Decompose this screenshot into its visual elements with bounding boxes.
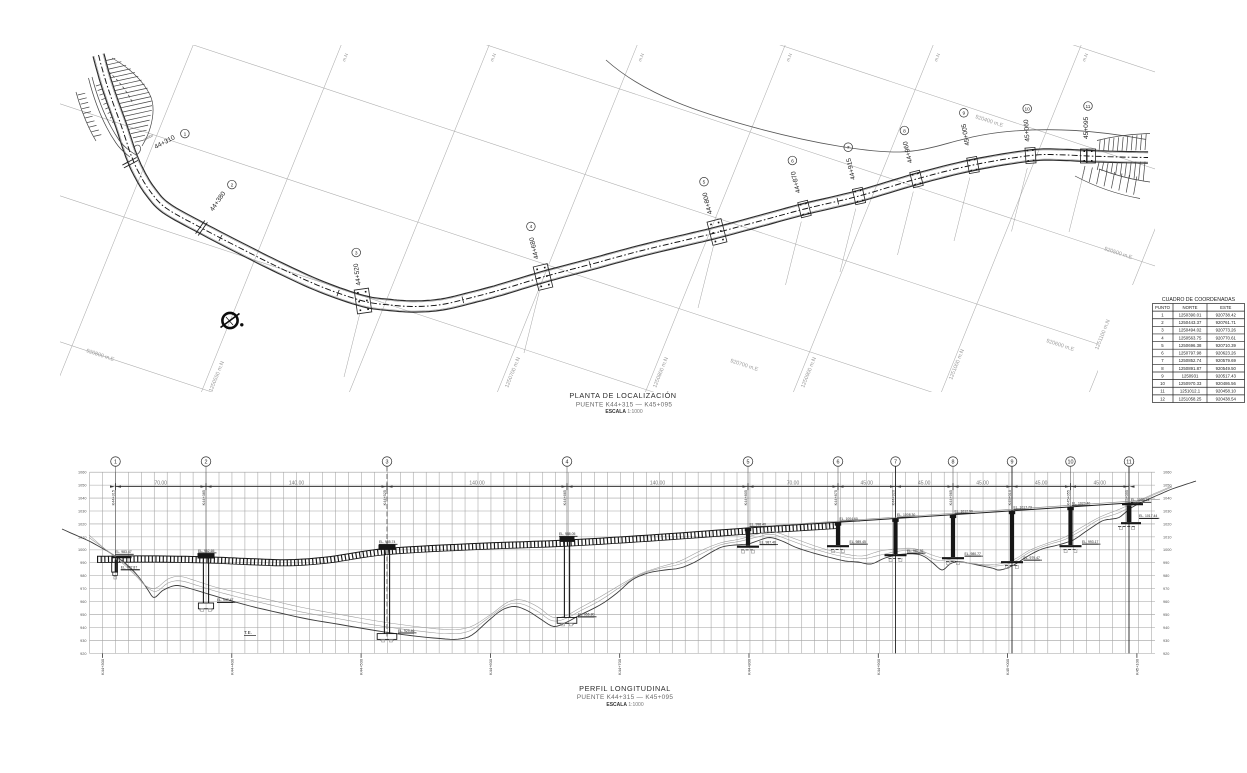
svg-text:140.00: 140.00 <box>469 480 485 486</box>
svg-text:1030: 1030 <box>1163 509 1171 513</box>
svg-text:PUENTE K44+315 — K45+095: PUENTE K44+315 — K45+095 <box>577 694 674 701</box>
svg-text:3: 3 <box>386 460 389 466</box>
svg-text:1060: 1060 <box>78 471 86 475</box>
svg-text:1250494.02: 1250494.02 <box>1179 328 1202 333</box>
svg-text:920458.10: 920458.10 <box>1216 389 1237 394</box>
svg-text:940: 940 <box>1163 626 1169 630</box>
svg-text:1250931: 1250931 <box>1182 373 1199 378</box>
svg-text:9: 9 <box>1011 460 1014 466</box>
svg-text:K44+315: K44+315 <box>111 490 115 505</box>
svg-text:EL. 987.32: EL. 987.32 <box>907 549 924 553</box>
svg-text:EL. 947.47: EL. 947.47 <box>217 598 234 602</box>
svg-text:11: 11 <box>1086 104 1091 110</box>
svg-text:920: 920 <box>80 652 86 656</box>
svg-text:EL. 987.46: EL. 987.46 <box>760 541 777 545</box>
svg-text:10: 10 <box>1068 460 1074 466</box>
svg-text:EL. 929.46: EL. 929.46 <box>398 629 415 633</box>
svg-text:2: 2 <box>231 182 234 188</box>
svg-text:K44+300: K44+300 <box>100 658 105 675</box>
svg-text:12: 12 <box>1160 396 1165 401</box>
svg-text:1: 1 <box>184 131 187 137</box>
svg-text:T.E.: T.E. <box>244 630 252 635</box>
svg-text:1250696.38: 1250696.38 <box>1179 343 1202 348</box>
svg-text:K44+800: K44+800 <box>747 658 752 675</box>
svg-text:2: 2 <box>205 460 208 466</box>
svg-text:45.00: 45.00 <box>918 480 931 486</box>
svg-text:1250563.75: 1250563.75 <box>1179 335 1202 340</box>
svg-text:NORTE: NORTE <box>1183 305 1198 310</box>
svg-text:EL. 989.45: EL. 989.45 <box>850 540 867 544</box>
svg-text:1250443.37: 1250443.37 <box>1179 320 1202 325</box>
svg-text:4: 4 <box>566 460 569 466</box>
svg-text:980: 980 <box>1163 574 1169 578</box>
svg-text:1060: 1060 <box>1163 471 1171 475</box>
svg-text:5: 5 <box>703 180 706 186</box>
svg-text:PUNTO: PUNTO <box>1155 305 1171 310</box>
svg-text:10: 10 <box>1160 381 1165 386</box>
svg-text:K45+055: K45+055 <box>1066 490 1070 505</box>
svg-text:5: 5 <box>747 460 750 466</box>
svg-text:3: 3 <box>355 250 358 256</box>
svg-text:990: 990 <box>1163 561 1169 565</box>
svg-text:K44+965: K44+965 <box>949 490 953 505</box>
svg-text:K44+805: K44+805 <box>744 490 748 505</box>
svg-text:1020: 1020 <box>78 522 86 526</box>
svg-text:140.00: 140.00 <box>289 480 305 486</box>
svg-text:K44+920: K44+920 <box>891 490 895 505</box>
svg-text:EL. 962.65: EL. 962.65 <box>198 549 215 553</box>
svg-text:1000: 1000 <box>78 548 86 552</box>
svg-text:ESTE: ESTE <box>1220 305 1231 310</box>
svg-text:EL. 1017.44: EL. 1017.44 <box>1139 514 1157 518</box>
svg-text:7: 7 <box>847 145 850 151</box>
svg-text:EL. 1008.30: EL. 1008.30 <box>897 513 915 517</box>
svg-text:70.00: 70.00 <box>154 480 167 486</box>
svg-text:EL. 988.05: EL. 988.05 <box>559 532 576 536</box>
svg-text:EL. 956.80: EL. 956.80 <box>578 613 595 617</box>
svg-text:930: 930 <box>80 639 86 643</box>
svg-text:9: 9 <box>962 111 965 117</box>
svg-text:ESCALA 1:1000: ESCALA 1:1000 <box>605 409 642 415</box>
svg-text:EL. 979.47: EL. 979.47 <box>1024 556 1041 560</box>
svg-text:1030: 1030 <box>78 509 86 513</box>
svg-text:PLANTA DE LOCALIZACIÓN: PLANTA DE LOCALIZACIÓN <box>569 391 676 400</box>
svg-text:920517.43: 920517.43 <box>1216 373 1237 378</box>
svg-text:960: 960 <box>1163 600 1169 604</box>
svg-text:920738.42: 920738.42 <box>1216 313 1237 318</box>
svg-text:960: 960 <box>80 600 86 604</box>
svg-text:EL. 980.77: EL. 980.77 <box>965 552 982 556</box>
svg-text:11: 11 <box>1160 389 1165 394</box>
svg-text:6: 6 <box>791 158 794 164</box>
svg-text:1050: 1050 <box>78 484 86 488</box>
svg-text:920761.71: 920761.71 <box>1216 320 1237 325</box>
svg-text:PERFIL LONGITUDINAL: PERFIL LONGITUDINAL <box>579 684 671 693</box>
svg-text:70.00: 70.00 <box>787 480 800 486</box>
svg-text:11: 11 <box>1126 460 1132 466</box>
svg-text:920438.54: 920438.54 <box>1216 396 1237 401</box>
svg-text:970: 970 <box>1163 587 1169 591</box>
svg-text:1251012.1: 1251012.1 <box>1180 389 1201 394</box>
svg-text:7: 7 <box>894 460 897 466</box>
svg-text:EL. 993.17: EL. 993.17 <box>1082 540 1099 544</box>
svg-text:1250390.01: 1250390.01 <box>1179 313 1202 318</box>
svg-text:K45+000: K45+000 <box>1005 658 1010 675</box>
svg-text:K44+600: K44+600 <box>488 658 493 675</box>
svg-text:1020: 1020 <box>1163 522 1171 526</box>
svg-text:45.00: 45.00 <box>860 480 873 486</box>
svg-text:990: 990 <box>80 561 86 565</box>
svg-text:920773.26: 920773.26 <box>1216 328 1237 333</box>
svg-text:970: 970 <box>80 587 86 591</box>
svg-text:1251058.25: 1251058.25 <box>1179 396 1202 401</box>
svg-text:1250797.98: 1250797.98 <box>1179 351 1202 356</box>
svg-text:ESCALA 1:1000: ESCALA 1:1000 <box>606 702 643 708</box>
svg-text:950: 950 <box>1163 613 1169 617</box>
svg-text:45.00: 45.00 <box>1035 480 1048 486</box>
svg-text:K44+400: K44+400 <box>229 658 234 675</box>
svg-text:45.00: 45.00 <box>976 480 989 486</box>
svg-text:EL. 977.87: EL. 977.87 <box>121 566 138 570</box>
svg-text:920770.61: 920770.61 <box>1216 335 1237 340</box>
svg-text:920: 920 <box>1163 652 1169 656</box>
svg-text:K45+010: K45+010 <box>1008 490 1012 505</box>
svg-text:PUENTE K44+315 — K45+095: PUENTE K44+315 — K45+095 <box>576 402 673 409</box>
svg-text:1010: 1010 <box>1163 535 1171 539</box>
svg-text:930: 930 <box>1163 639 1169 643</box>
svg-text:K45+100: K45+100 <box>1134 658 1139 675</box>
svg-text:1040: 1040 <box>1163 496 1171 500</box>
svg-text:EL. 1004.60: EL. 1004.60 <box>840 517 858 521</box>
svg-text:920486.56: 920486.56 <box>1216 381 1237 386</box>
svg-text:940: 940 <box>80 626 86 630</box>
svg-text:8: 8 <box>903 128 906 134</box>
svg-text:EL. 1017.73: EL. 1017.73 <box>1014 505 1032 509</box>
svg-text:920710.39: 920710.39 <box>1216 343 1237 348</box>
svg-text:K44+500: K44+500 <box>359 658 364 675</box>
svg-text:1250970.33: 1250970.33 <box>1179 381 1202 386</box>
svg-text:K44+700: K44+700 <box>617 658 622 675</box>
svg-text:EL. 985.74: EL. 985.74 <box>379 540 396 544</box>
svg-text:920623.26: 920623.26 <box>1216 351 1237 356</box>
svg-text:950: 950 <box>80 613 86 617</box>
svg-text:8: 8 <box>952 460 955 466</box>
svg-text:K44+525: K44+525 <box>383 490 387 505</box>
svg-text:6: 6 <box>837 460 840 466</box>
svg-text:K44+900: K44+900 <box>876 658 881 675</box>
svg-text:EL. 1020.40: EL. 1020.40 <box>1072 501 1090 505</box>
svg-text:EL. 1030.13: EL. 1030.13 <box>1131 498 1149 502</box>
svg-text:920549.50: 920549.50 <box>1216 366 1237 371</box>
svg-text:K44+875: K44+875 <box>834 490 838 505</box>
svg-text:920579.69: 920579.69 <box>1216 358 1237 363</box>
svg-text:EL. 998.40: EL. 998.40 <box>750 522 767 526</box>
svg-text:1040: 1040 <box>78 496 86 500</box>
svg-text:K44+385: K44+385 <box>202 490 206 505</box>
svg-text:45.00: 45.00 <box>1093 480 1106 486</box>
svg-text:10: 10 <box>1025 106 1031 112</box>
svg-text:1: 1 <box>114 460 117 466</box>
svg-text:EL. 983.47: EL. 983.47 <box>115 550 132 554</box>
svg-text:EL. 1012.90: EL. 1012.90 <box>955 509 973 513</box>
svg-text:1000: 1000 <box>1163 548 1171 552</box>
svg-text:45+095: 45+095 <box>1083 116 1090 139</box>
svg-text:1250891.87: 1250891.87 <box>1179 366 1202 371</box>
svg-text:4: 4 <box>530 224 533 230</box>
svg-text:1250852.74: 1250852.74 <box>1179 358 1202 363</box>
svg-text:K44+665: K44+665 <box>563 490 567 505</box>
svg-text:140.00: 140.00 <box>650 480 666 486</box>
svg-text:980: 980 <box>80 574 86 578</box>
svg-text:CUADRO DE COORDENADAS: CUADRO DE COORDENADAS <box>1162 297 1236 303</box>
svg-text:1010: 1010 <box>78 535 86 539</box>
